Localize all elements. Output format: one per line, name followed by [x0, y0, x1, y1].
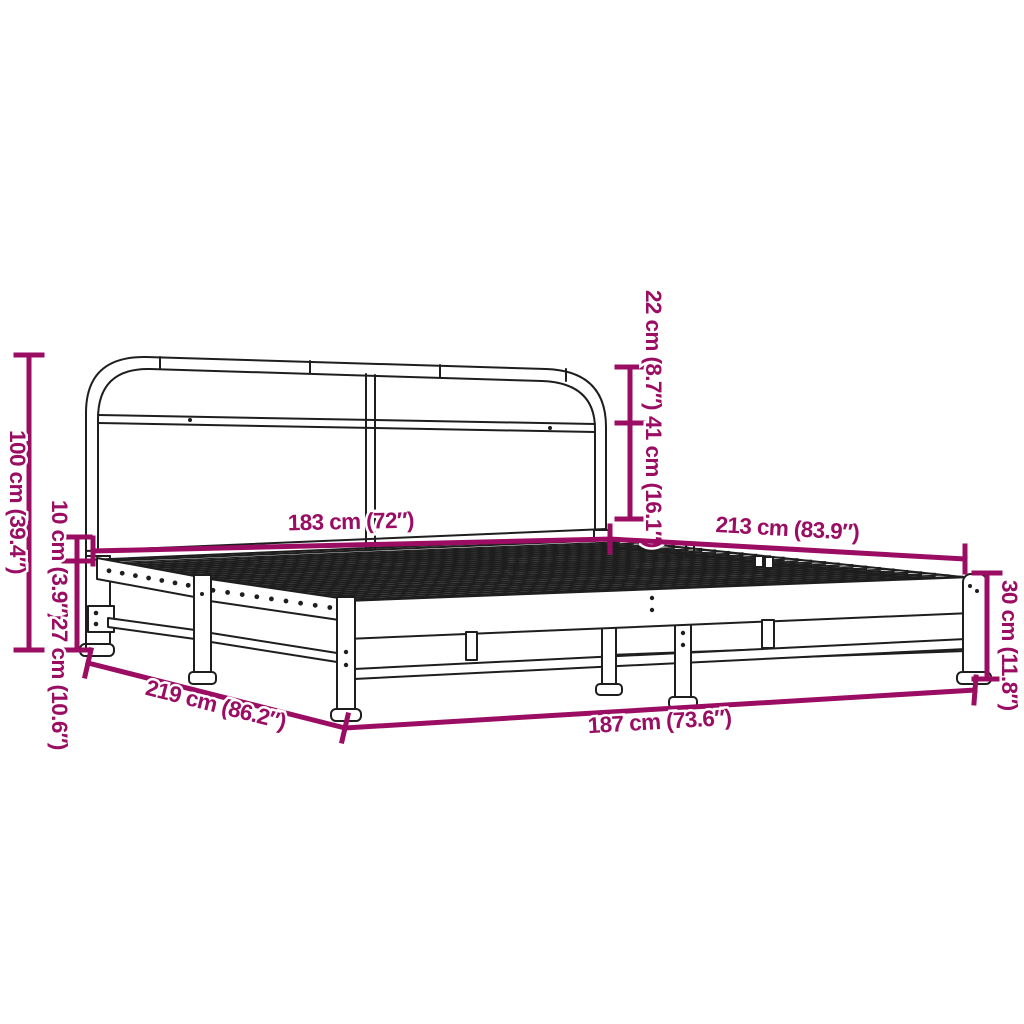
side-lower-tube	[108, 618, 195, 639]
side-lower-tube	[211, 633, 337, 662]
dim-outer-length: 219 cm (86.2″)	[85, 650, 348, 741]
mount-tab	[466, 632, 477, 660]
dimension-annotations: 100 cm (39.4″) 10 cm (3.9″) 27 cm (10.6″…	[5, 290, 1022, 750]
dim-total-height-label: 100 cm (39.4″)	[5, 430, 30, 574]
side-mid-leg	[194, 575, 211, 677]
dim-side-height-label: 30 cm (11.8″)	[997, 580, 1022, 711]
dim-outer-length-label: 219 cm (86.2″)	[143, 675, 289, 735]
dim-headboard-top-label: 22 cm (8.7″)	[641, 290, 666, 410]
dim-outer-width: 187 cm (73.6″)	[345, 677, 976, 738]
slat-clip	[765, 557, 773, 568]
dim-inner-width-label: 183 cm (72″)	[287, 508, 414, 536]
product-dimension-diagram: 100 cm (39.4″) 10 cm (3.9″) 27 cm (10.6″…	[0, 0, 1024, 1024]
bed-frame-diagram: 100 cm (39.4″) 10 cm (3.9″) 27 cm (10.6″…	[0, 0, 1024, 1024]
slat-clip	[755, 556, 763, 567]
near-corner-leg	[337, 597, 355, 714]
headboard-crossbar	[98, 415, 595, 424]
dim-under-bed-clearance-label: 27 cm (10.6″)	[47, 618, 72, 750]
dim-inner-length-label: 213 cm (83.9″)	[715, 512, 860, 545]
dim-total-height: 100 cm (39.4″)	[5, 355, 42, 650]
dim-upper-clearance-label: 10 cm (3.9″)	[47, 500, 72, 620]
foot-corner-leg	[963, 574, 987, 678]
foot-lower-tube	[354, 639, 966, 679]
dim-headboard-lower-label: 41 cm (16.1″)	[641, 416, 666, 548]
dim-headboard-sections: 22 cm (8.7″) 41 cm (16.1″)	[617, 290, 666, 548]
mount-tab	[762, 620, 774, 648]
dim-clearance: 10 cm (3.9″) 27 cm (10.6″)	[47, 500, 90, 750]
